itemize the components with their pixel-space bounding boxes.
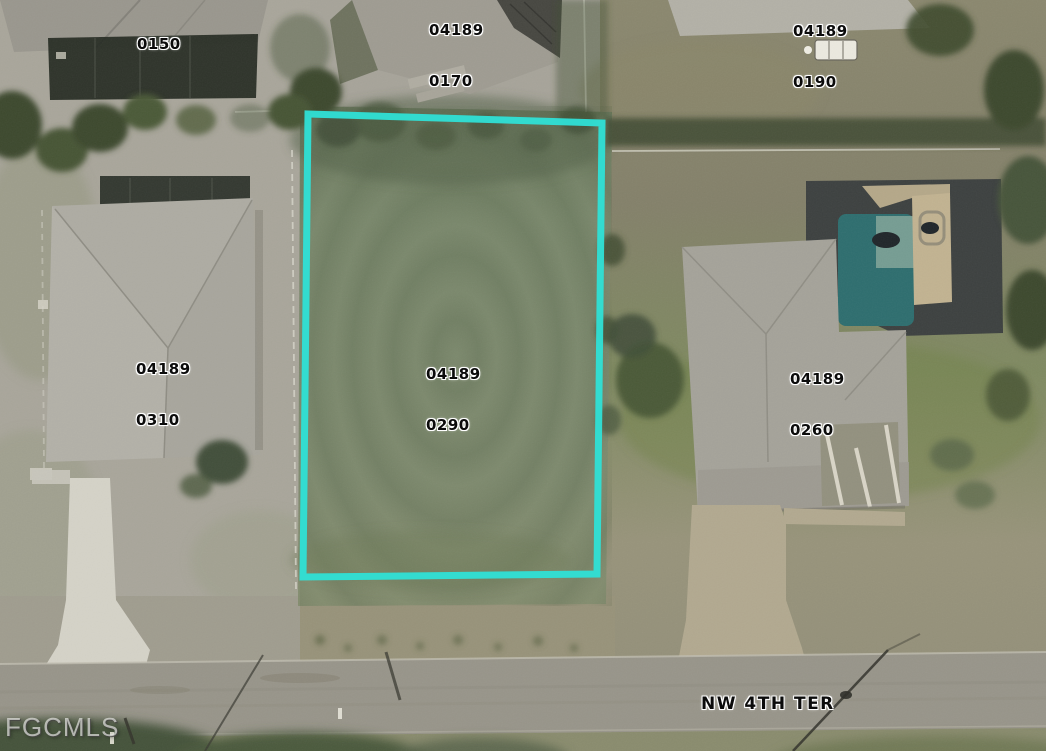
parcel-label-0260: 04189 0260	[790, 337, 845, 473]
parcel-label-0170: 04189 0170	[429, 0, 484, 124]
parcel-number: 0190	[793, 74, 848, 91]
parcel-strap: 04189	[793, 23, 848, 40]
aerial-parcel-map: 0150 04189 0170 04189 0190 04189 0310 04…	[0, 0, 1046, 751]
parcel-strap: 04189	[426, 366, 481, 383]
parcel-label-0190: 04189 0190	[793, 0, 848, 125]
parcel-number: 0260	[790, 422, 845, 439]
parcel-number: 0290	[426, 417, 481, 434]
parcel-number: 0310	[136, 412, 191, 429]
parcel-strap: 04189	[136, 361, 191, 378]
parcel-number: 0170	[429, 73, 484, 90]
parcel-strap: 04189	[790, 371, 845, 388]
parcel-strap: 04189	[429, 22, 484, 39]
parcel-label-0310: 04189 0310	[136, 327, 191, 463]
parcel-number: 0150	[137, 36, 181, 53]
parcel-label-0290: 04189 0290	[426, 332, 481, 468]
parcel-label-0150: 0150	[137, 2, 181, 87]
street-label: NW 4TH TER	[701, 694, 835, 714]
mls-watermark: FGCMLS	[5, 712, 119, 743]
